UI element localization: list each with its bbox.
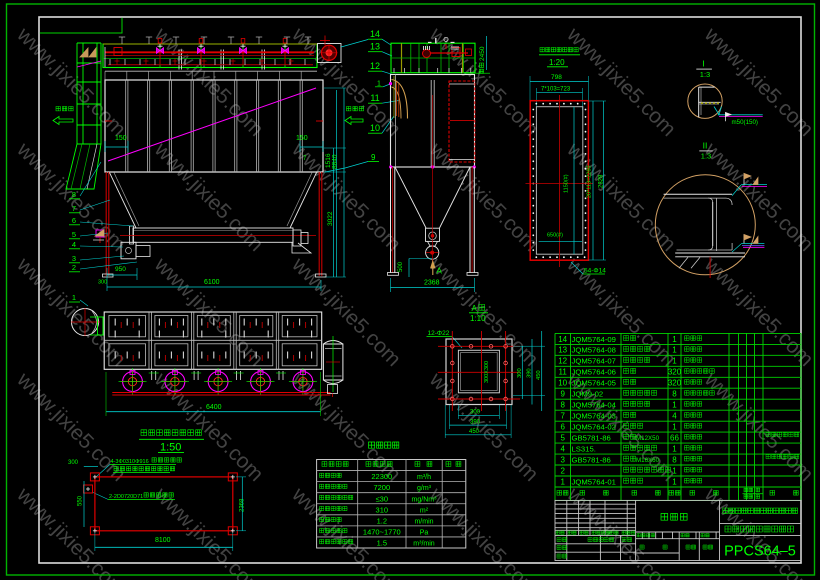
svg-text:m/min: m/min xyxy=(414,518,433,525)
svg-text:GB5781-86: GB5781-86 xyxy=(572,455,611,464)
svg-text:1: 1 xyxy=(377,81,381,88)
svg-text:6: 6 xyxy=(72,216,76,225)
svg-text:14: 14 xyxy=(370,29,380,39)
svg-text:13: 13 xyxy=(370,42,380,52)
svg-text:6: 6 xyxy=(560,423,565,432)
svg-text:950: 950 xyxy=(115,266,126,273)
svg-text:3022: 3022 xyxy=(327,211,334,226)
svg-text:JQM5764-07: JQM5764-07 xyxy=(572,357,616,366)
svg-text:10: 10 xyxy=(558,379,567,388)
svg-text:390: 390 xyxy=(527,368,533,378)
svg-text:12-Φ22: 12-Φ22 xyxy=(428,330,450,337)
svg-text:7: 7 xyxy=(560,412,565,421)
svg-text:JQM9-02: JQM9-02 xyxy=(572,390,604,399)
svg-text:1: 1 xyxy=(672,401,677,410)
svg-text:450: 450 xyxy=(469,429,480,435)
svg-text:7: 7 xyxy=(72,204,76,213)
svg-text:1: 1 xyxy=(672,477,677,486)
svg-text:150: 150 xyxy=(296,135,308,142)
svg-text:1.5: 1.5 xyxy=(377,539,387,548)
svg-text:1: 1 xyxy=(672,335,677,344)
svg-text:1:10: 1:10 xyxy=(470,314,486,323)
svg-text:20*113=2260: 20*113=2260 xyxy=(587,166,593,198)
svg-text:Pa: Pa xyxy=(420,529,429,536)
svg-text:14: 14 xyxy=(558,335,567,344)
svg-text:1: 1 xyxy=(72,293,76,302)
svg-text:PPCS64–5: PPCS64–5 xyxy=(724,544,796,560)
svg-text:11: 11 xyxy=(559,368,568,377)
svg-text:4: 4 xyxy=(560,444,565,453)
svg-text:10: 10 xyxy=(370,123,380,133)
svg-text:8100: 8100 xyxy=(155,537,171,544)
svg-text:1: 1 xyxy=(672,357,677,366)
svg-text:300: 300 xyxy=(470,410,481,416)
svg-text:m³/h: m³/h xyxy=(417,474,431,481)
svg-text:66: 66 xyxy=(670,434,679,443)
svg-text:450: 450 xyxy=(536,370,542,380)
svg-text:A: A xyxy=(437,267,443,276)
svg-text:JQM5764-08: JQM5764-08 xyxy=(572,346,616,355)
svg-text:≤30: ≤30 xyxy=(376,494,388,503)
svg-text:II: II xyxy=(703,141,708,151)
svg-text:1470~1770: 1470~1770 xyxy=(363,527,401,536)
svg-text:8: 8 xyxy=(672,390,677,399)
svg-text:54-Φ14: 54-Φ14 xyxy=(584,268,606,275)
svg-text:300: 300 xyxy=(98,280,107,286)
svg-text:JQM5764-01: JQM5764-01 xyxy=(572,477,616,486)
svg-text:1: 1 xyxy=(672,444,677,453)
svg-text:5: 5 xyxy=(560,434,565,443)
svg-text:mg/Nm³: mg/Nm³ xyxy=(412,496,438,503)
svg-text:6100: 6100 xyxy=(204,279,220,286)
svg-text:GB5781-86: GB5781-86 xyxy=(572,434,611,443)
svg-text:1:3: 1:3 xyxy=(700,70,710,79)
svg-text:9: 9 xyxy=(560,390,565,399)
svg-text:11: 11 xyxy=(370,93,379,103)
svg-text:4: 4 xyxy=(672,412,677,421)
svg-text:JQM5764-04: JQM5764-04 xyxy=(572,401,617,410)
svg-text:JQM5764-05: JQM5764-05 xyxy=(572,379,616,388)
svg-text:2368: 2368 xyxy=(424,280,440,287)
svg-text:3: 3 xyxy=(72,254,76,263)
svg-text:2328: 2328 xyxy=(599,174,605,188)
svg-text:320: 320 xyxy=(668,379,682,388)
svg-text:9: 9 xyxy=(371,153,376,162)
svg-text:12: 12 xyxy=(558,357,567,366)
svg-text:12: 12 xyxy=(370,61,380,71)
svg-text:8: 8 xyxy=(672,455,677,464)
svg-text:LS315.: LS315. xyxy=(572,444,596,453)
svg-text:4: 4 xyxy=(72,240,76,249)
svg-text:2450: 2450 xyxy=(479,46,486,61)
svg-text:1:3: 1:3 xyxy=(701,152,711,161)
svg-text:JQM5764-06: JQM5764-06 xyxy=(572,368,616,377)
svg-text:JQM5764-09: JQM5764-09 xyxy=(572,335,616,344)
svg-text:m³/min: m³/min xyxy=(413,541,434,548)
svg-text:1:50: 1:50 xyxy=(160,442,181,454)
svg-text:320: 320 xyxy=(668,368,682,377)
svg-text:1:20: 1:20 xyxy=(549,58,565,67)
svg-text:5: 5 xyxy=(72,230,76,239)
svg-text:m²: m² xyxy=(420,507,429,514)
svg-text:3: 3 xyxy=(560,455,565,464)
svg-text:300X300: 300X300 xyxy=(484,361,490,383)
svg-text:M16X60: M16X60 xyxy=(636,457,660,464)
svg-text:1150(#): 1150(#) xyxy=(564,174,570,193)
svg-text:1: 1 xyxy=(672,423,677,432)
svg-text:I: I xyxy=(702,59,704,69)
svg-text:310: 310 xyxy=(376,505,389,514)
svg-text:1.2: 1.2 xyxy=(377,516,387,525)
svg-text:JQM5764-03: JQM5764-03 xyxy=(572,412,616,421)
svg-text:2: 2 xyxy=(560,466,565,475)
svg-text:1: 1 xyxy=(560,477,565,486)
svg-text:g/m³: g/m³ xyxy=(417,485,432,492)
svg-text:A: A xyxy=(472,304,478,313)
svg-text:650(#): 650(#) xyxy=(547,233,563,239)
svg-text:8: 8 xyxy=(560,401,565,410)
svg-text:JQM5764-02: JQM5764-02 xyxy=(572,423,616,432)
svg-text:390: 390 xyxy=(470,419,481,425)
svg-text:798: 798 xyxy=(551,74,562,81)
svg-text:m50(150): m50(150) xyxy=(732,119,758,126)
svg-text:8840: 8840 xyxy=(332,154,339,169)
svg-text:13: 13 xyxy=(558,346,567,355)
svg-text:550: 550 xyxy=(78,495,84,506)
svg-text:6400: 6400 xyxy=(206,404,222,411)
svg-text:1: 1 xyxy=(672,466,677,475)
svg-text:150: 150 xyxy=(115,135,127,142)
svg-text:500: 500 xyxy=(398,261,404,272)
svg-text:1: 1 xyxy=(672,346,677,355)
svg-text:8: 8 xyxy=(72,190,76,199)
svg-text:7200: 7200 xyxy=(373,483,390,492)
svg-text:300: 300 xyxy=(517,368,523,378)
svg-text:300: 300 xyxy=(68,460,79,466)
svg-text:M12X50: M12X50 xyxy=(636,435,660,442)
svg-text:22300: 22300 xyxy=(371,472,392,481)
svg-text:7*103=723: 7*103=723 xyxy=(541,87,571,93)
svg-text:2: 2 xyxy=(72,263,76,272)
